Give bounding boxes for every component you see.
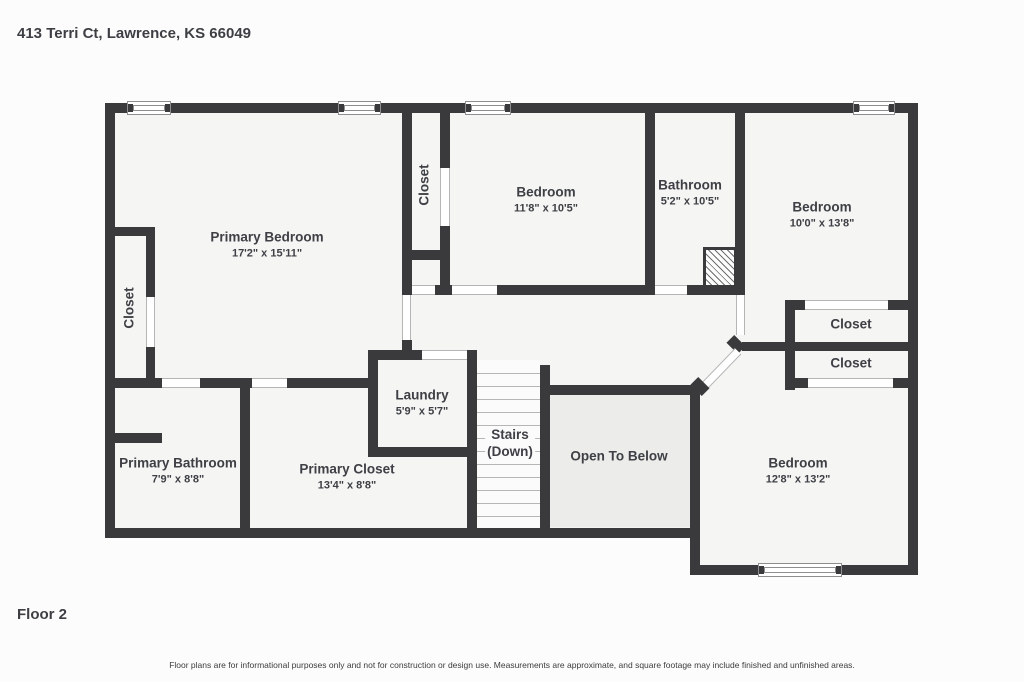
wall-segment (540, 365, 550, 538)
room-name: Closet (417, 164, 434, 205)
room-dims: 5'2" x 10'5" (658, 194, 722, 208)
door-opening (452, 285, 497, 295)
chimney-hatch (703, 247, 737, 288)
wall-segment (200, 378, 252, 388)
room-name: Primary Bathroom (119, 455, 237, 472)
room-name: Bathroom (658, 177, 722, 194)
room-name: Bedroom (514, 184, 578, 201)
door-opening (162, 378, 200, 388)
door-opening (440, 168, 450, 226)
exterior-notch (105, 538, 690, 582)
wall-segment (105, 103, 115, 538)
room-name: Bedroom (766, 455, 831, 472)
wall-segment (785, 378, 808, 388)
door-opening (805, 300, 888, 310)
room-dims: 5'9" x 5'7" (395, 404, 448, 418)
window (338, 101, 381, 115)
floor-plan-canvas: Primary Bedroom 17'2" x 15'11" Bedroom 1… (0, 0, 1024, 682)
wall-segment (402, 113, 412, 260)
wall-segment (105, 378, 162, 388)
room-label-primary-bedroom: Primary Bedroom 17'2" x 15'11" (210, 229, 323, 260)
wall-segment (893, 378, 918, 388)
wall-segment (368, 350, 378, 457)
wall-segment (467, 350, 477, 538)
wall-segment (785, 300, 795, 390)
wall-segment (440, 113, 450, 168)
room-label-bedroom-bottom: Bedroom 12'8" x 13'2" (766, 455, 831, 486)
room-label-closet-right-1: Closet (830, 317, 871, 334)
wall-segment (435, 285, 452, 295)
wall-segment (908, 103, 918, 575)
passage-opening (402, 295, 411, 340)
room-label-closet-right-2: Closet (830, 356, 871, 373)
floor-plan-page: { "header": { "address": "413 Terri Ct, … (0, 0, 1024, 682)
wall-segment (368, 447, 467, 457)
room-label-closet-top: Closet (417, 164, 434, 205)
window (758, 563, 842, 577)
room-label-bathroom: Bathroom 5'2" x 10'5" (658, 177, 722, 208)
window (853, 101, 895, 115)
door-opening (412, 285, 435, 295)
room-name: Closet (830, 356, 871, 373)
wall-segment (105, 103, 918, 113)
wall-segment (115, 433, 162, 443)
wall-segment (742, 342, 908, 351)
wall-segment (240, 388, 250, 528)
room-dims: 11'8" x 10'5" (514, 201, 578, 215)
room-dims: 13'4" x 8'8" (299, 478, 394, 492)
room-label-laundry: Laundry 5'9" x 5'7" (395, 387, 448, 418)
wall-segment (550, 385, 700, 395)
room-name: Primary Closet (299, 461, 394, 478)
door-opening (808, 378, 893, 388)
window-sash (859, 105, 889, 111)
room-label-stairs: Stairs (Down) (485, 426, 535, 462)
disclaimer-text: Floor plans are for informational purpos… (0, 660, 1024, 670)
room-label-open-to-below: Open To Below (570, 449, 667, 466)
door-opening (736, 295, 745, 335)
wall-segment (105, 528, 700, 538)
wall-segment (402, 260, 412, 295)
room-name: Primary Bedroom (210, 229, 323, 246)
room-name: Closet (830, 317, 871, 334)
wall-segment (402, 340, 412, 352)
wall-segment (888, 300, 918, 310)
wall-segment (368, 350, 422, 360)
room-dims: 17'2" x 15'11" (210, 246, 323, 260)
room-name: Open To Below (570, 449, 667, 466)
door-opening (422, 350, 467, 360)
floor-label: Floor 2 (17, 606, 67, 623)
room-dims: 7'9" x 8'8" (119, 472, 237, 486)
door-opening (146, 297, 155, 347)
door-opening (655, 285, 687, 295)
room-dims: 12'8" x 13'2" (766, 472, 831, 486)
window-sash (764, 567, 836, 573)
wall-segment (645, 113, 655, 295)
wall-segment (497, 285, 655, 295)
wall-segment (785, 300, 805, 310)
room-name: Bedroom (790, 199, 855, 216)
room-label-primary-bathroom: Primary Bathroom 7'9" x 8'8" (119, 455, 237, 486)
room-label-bedroom-top: Bedroom 11'8" x 10'5" (514, 184, 578, 215)
door-opening (252, 378, 287, 388)
wall-segment (690, 388, 700, 575)
room-label-bedroom-right: Bedroom 10'0" x 13'8" (790, 199, 855, 230)
room-sub: (Down) (487, 444, 533, 461)
wall-segment (146, 227, 155, 297)
room-name: Laundry (395, 387, 448, 404)
room-name: Closet (122, 287, 139, 328)
window (127, 101, 171, 115)
wall-segment (402, 250, 450, 260)
room-dims: 10'0" x 13'8" (790, 216, 855, 230)
wall-segment (287, 378, 378, 388)
room-label-primary-closet: Primary Closet 13'4" x 8'8" (299, 461, 394, 492)
room-label-closet-left: Closet (122, 287, 139, 328)
window-sash (133, 105, 165, 111)
window (465, 101, 511, 115)
window-sash (344, 105, 375, 111)
window-sash (471, 105, 505, 111)
room-name: Stairs (487, 427, 533, 444)
wall-segment (440, 260, 450, 285)
